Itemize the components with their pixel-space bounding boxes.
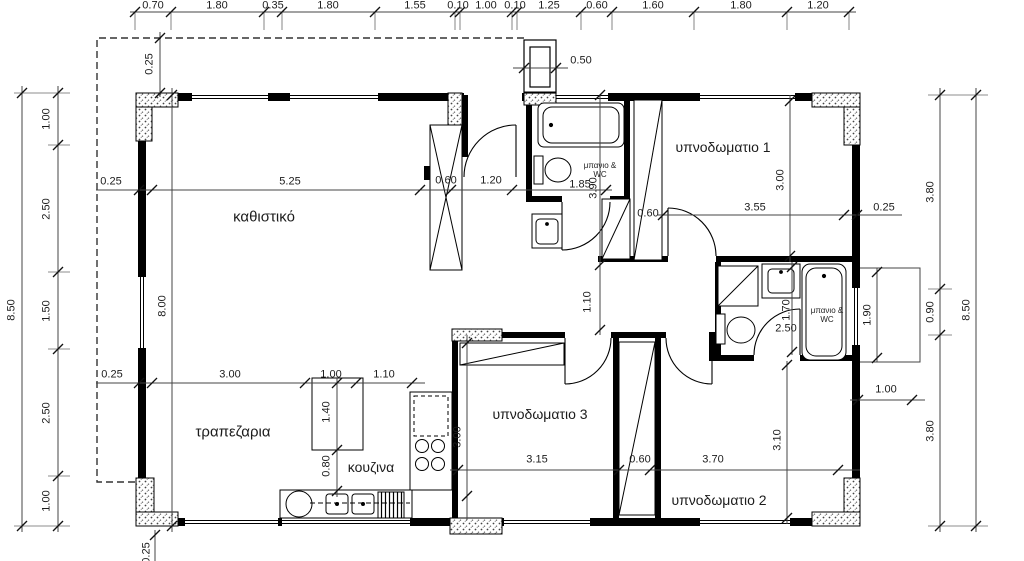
bathroom2-fixtures (716, 264, 846, 360)
floor-plan-drawing (0, 0, 1024, 561)
stove-burner-icon (416, 458, 429, 471)
appliance-grate-icon (378, 492, 404, 518)
exterior-walls (138, 93, 860, 526)
stove-burner-icon (432, 440, 445, 453)
toilet-icon (716, 314, 725, 344)
exterior-windows (138, 93, 860, 526)
stove-burner-icon (416, 440, 429, 453)
chimney (524, 40, 556, 93)
floor-plan-canvas: 0.701.800.351.801.550.101.000.101.250.60… (0, 0, 1024, 561)
stove-burner-icon (432, 458, 445, 471)
kitchen-fixtures (280, 378, 452, 518)
concrete-columns-hatched (136, 92, 860, 534)
round-sink-icon (286, 491, 312, 517)
toilet-icon (534, 156, 543, 184)
